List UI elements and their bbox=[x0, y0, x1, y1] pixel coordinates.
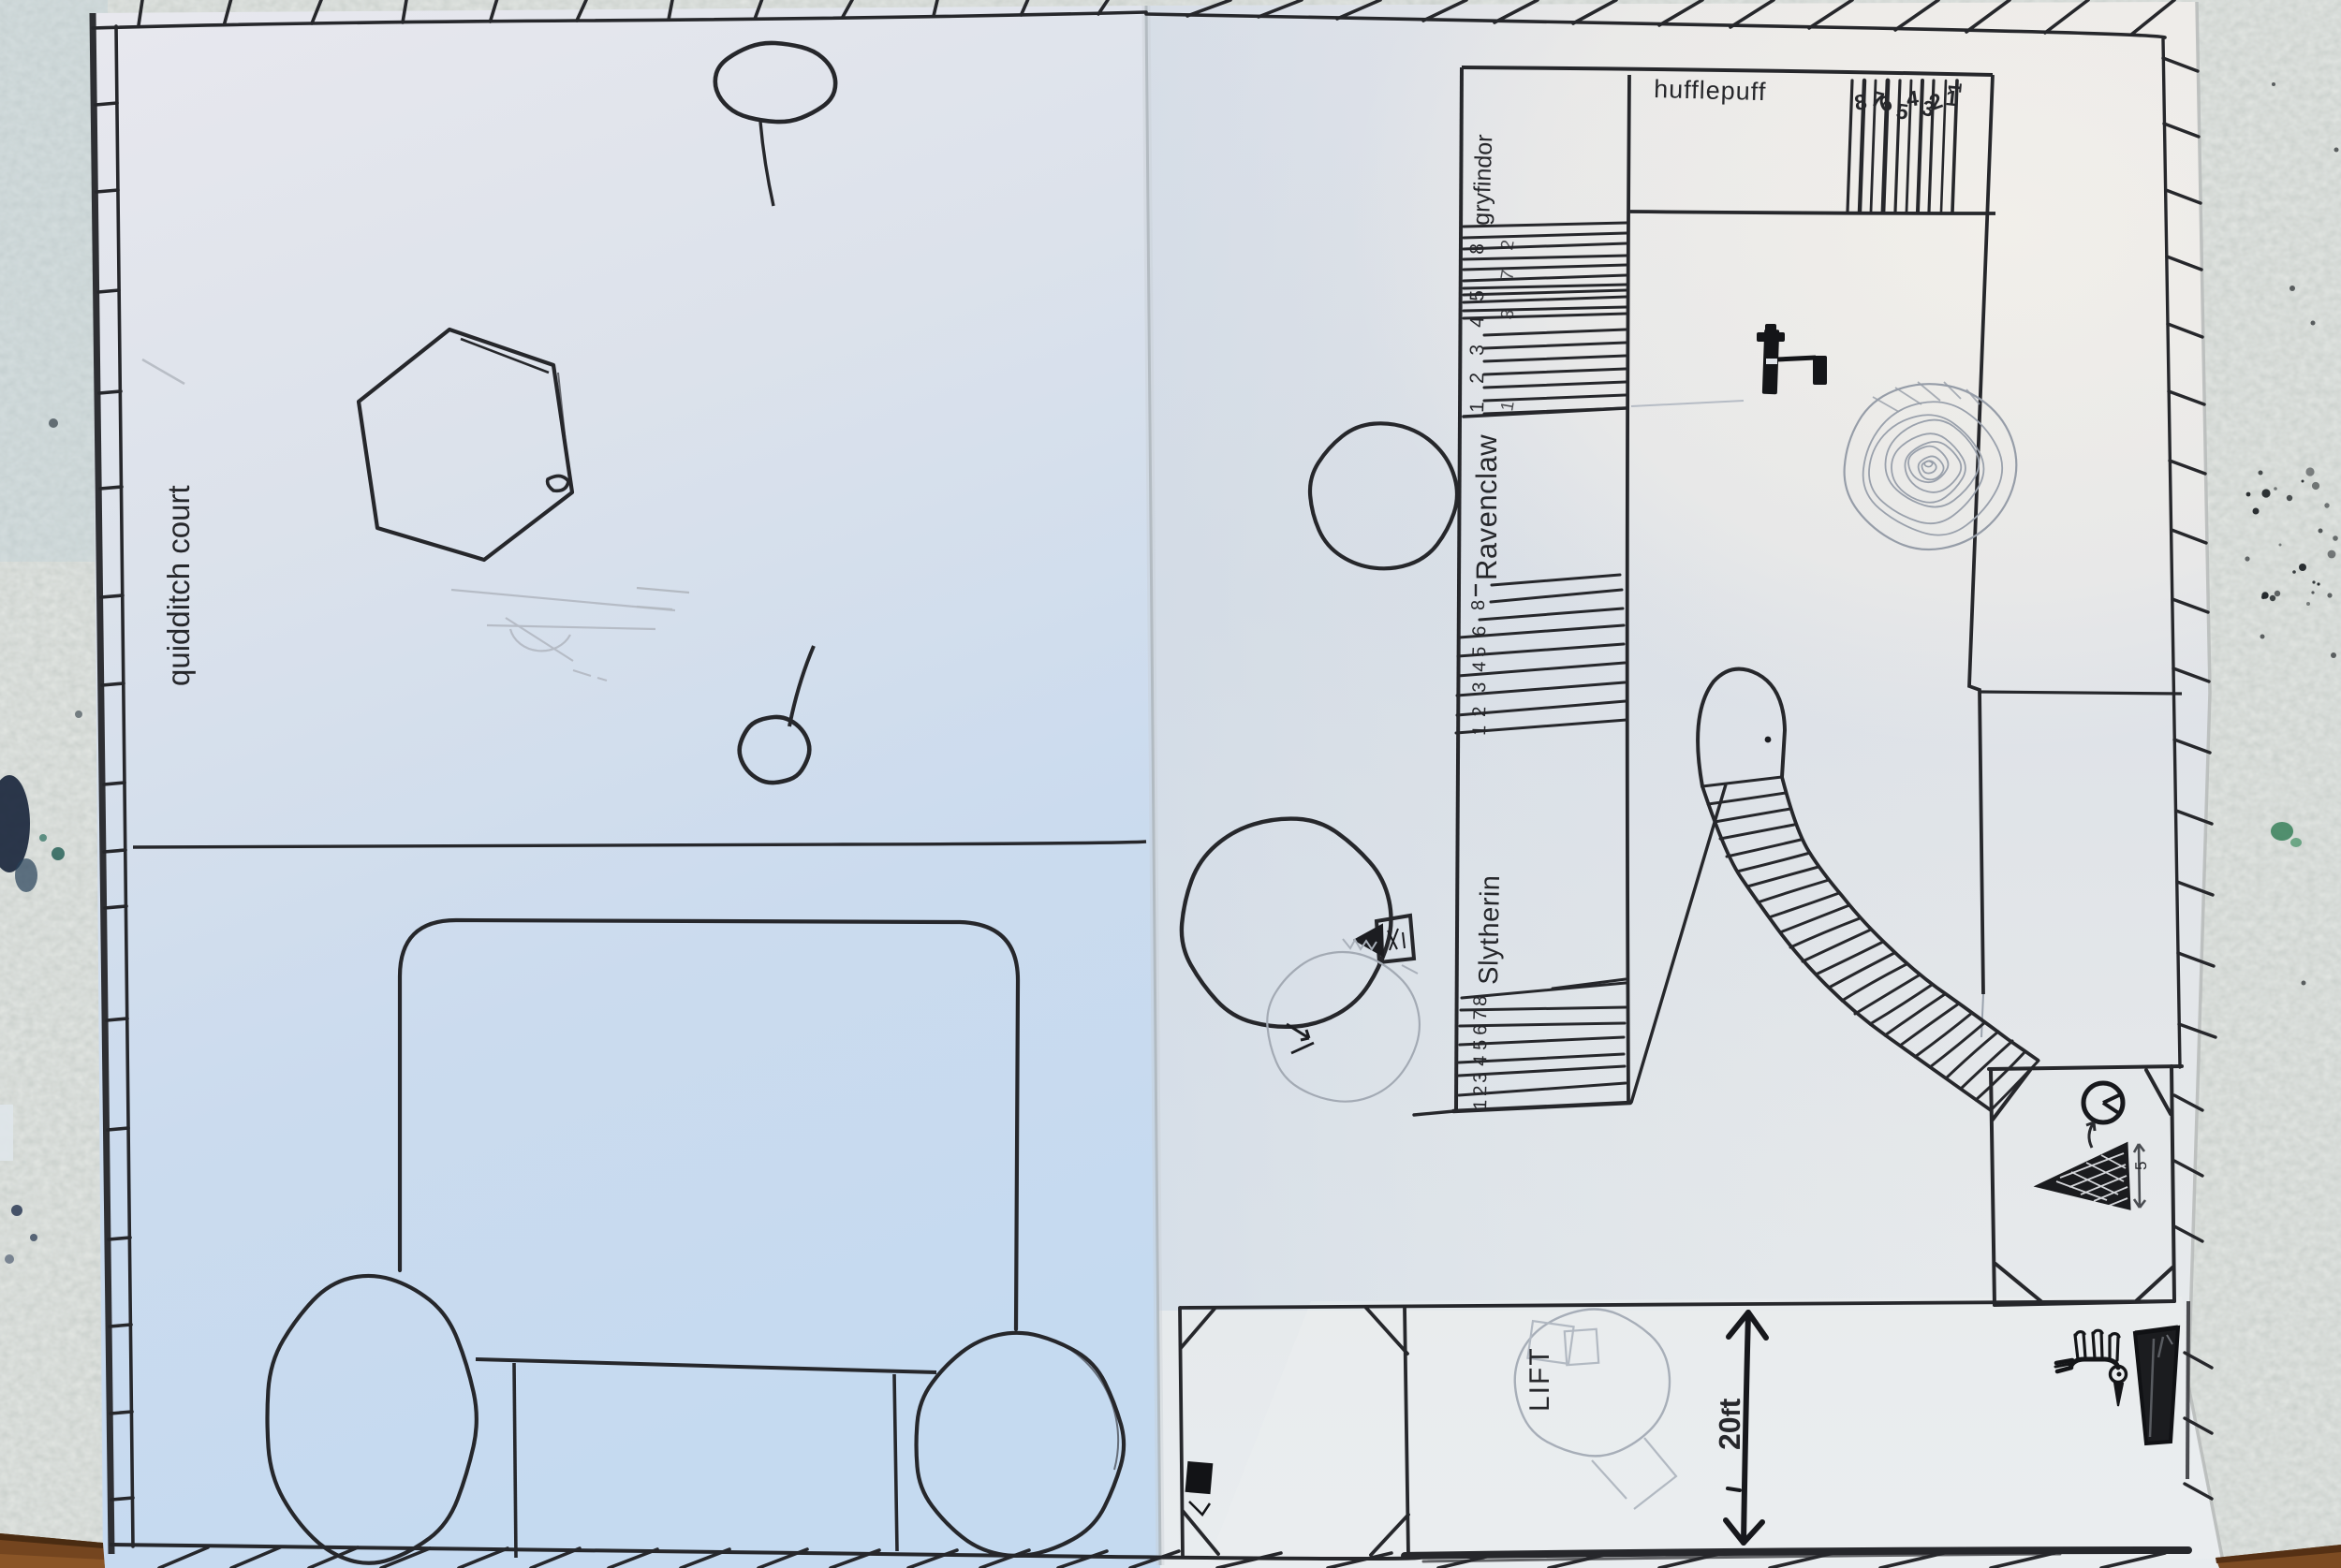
svg-text:gryfindor: gryfindor bbox=[1468, 134, 1497, 226]
svg-text:1: 1 bbox=[1945, 81, 1966, 94]
svg-text:3: 3 bbox=[1466, 344, 1488, 356]
svg-text:5: 5 bbox=[1466, 290, 1488, 301]
svg-text:2: 2 bbox=[1469, 706, 1490, 717]
svg-text:8: 8 bbox=[1468, 600, 1489, 610]
svg-text:5: 5 bbox=[2132, 1162, 2150, 1170]
svg-text:LIFT: LIFT bbox=[1524, 1346, 1555, 1412]
svg-text:Ravenclaw: Ravenclaw bbox=[1470, 434, 1503, 580]
svg-text:quidditch court: quidditch court bbox=[161, 485, 196, 686]
svg-text:hufflepuff: hufflepuff bbox=[1654, 75, 1767, 106]
svg-text:5: 5 bbox=[1469, 646, 1490, 657]
svg-text:Slytherin: Slytherin bbox=[1474, 874, 1506, 985]
svg-text:4: 4 bbox=[1466, 315, 1488, 328]
svg-text:8: 8 bbox=[1466, 243, 1488, 255]
svg-text:20ft: 20ft bbox=[1713, 1398, 1746, 1450]
svg-text:2: 2 bbox=[1466, 373, 1488, 384]
svg-text:6: 6 bbox=[1469, 625, 1490, 637]
svg-text:4: 4 bbox=[1469, 661, 1490, 672]
svg-text:1: 1 bbox=[1469, 725, 1490, 736]
svg-text:3: 3 bbox=[1469, 681, 1490, 693]
svg-text:1: 1 bbox=[1466, 402, 1488, 413]
